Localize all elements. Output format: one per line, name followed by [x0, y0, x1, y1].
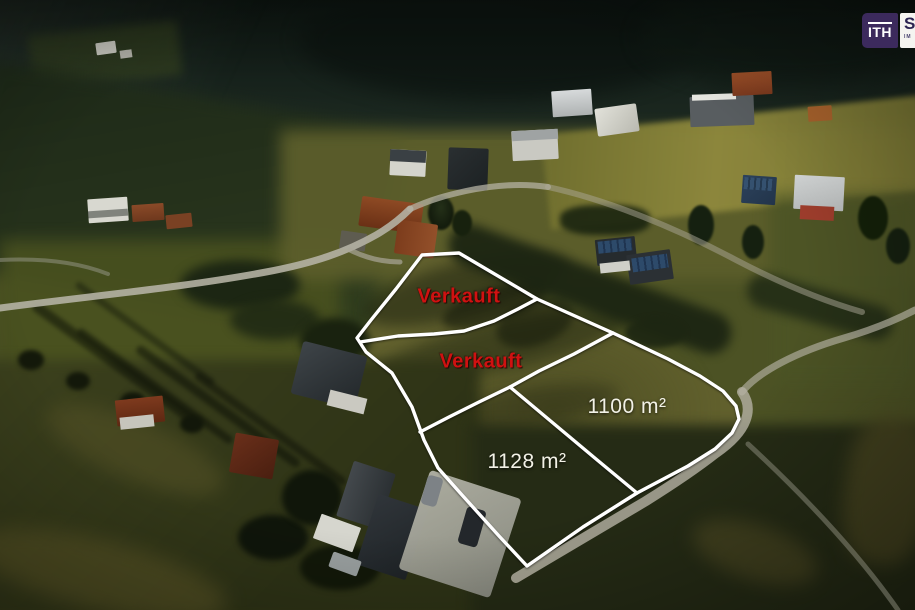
partner-logo-box: S IM — [900, 13, 915, 48]
area-label-1128: 1128 m² — [488, 450, 567, 474]
sold-label-plot-2: Verkauft — [440, 351, 523, 374]
agency-logo: ITH S IM — [862, 13, 915, 48]
aerial-property-photo: Verkauft Verkauft 1100 m² 1128 m² ITH S … — [0, 0, 915, 610]
ith-logo-text: ITH — [868, 22, 892, 39]
top-shade — [0, 0, 915, 80]
area-label-1100: 1100 m² — [588, 395, 667, 419]
ith-logo-box: ITH — [862, 13, 898, 48]
partner-logo-subtext: IM — [904, 34, 915, 40]
sold-label-plot-1: Verkauft — [418, 286, 501, 309]
partner-logo-letter: S — [904, 15, 915, 34]
